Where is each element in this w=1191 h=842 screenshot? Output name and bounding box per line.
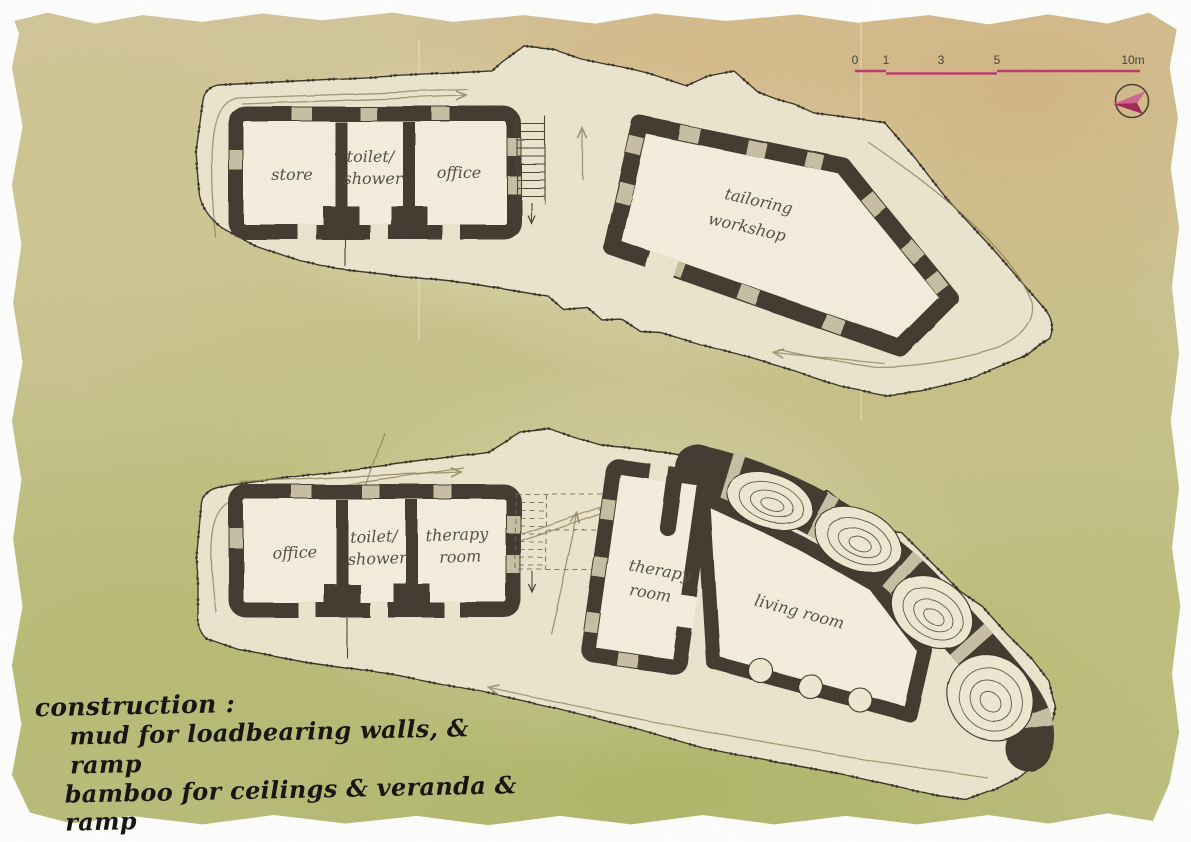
workshop-door: [648, 260, 676, 269]
lower-partition-foot: [394, 584, 430, 608]
note-line-mud: mud for loadbearing walls, & ramp: [69, 713, 536, 780]
upper-partition-wall: [335, 122, 347, 206]
scale-tick-0: 0: [852, 53, 859, 67]
scale-tick-5: 5: [994, 53, 1001, 67]
scale-tick-10m: 10m: [1121, 53, 1144, 67]
upper-partition-foot: [391, 206, 427, 230]
upper-partition-wall: [403, 122, 415, 206]
upper-plan: store toilet/ shower office tailoring wo…: [196, 46, 1052, 395]
therapy-living-door: [684, 596, 688, 628]
note-line-bamboo: bamboo for ceilings & veranda & ramp: [64, 770, 537, 837]
north-arrow-icon: [1113, 85, 1149, 118]
lower-partition-foot: [324, 584, 360, 608]
scale-tick-1: 1: [883, 53, 890, 67]
drawing-sheet: store toilet/ shower office tailoring wo…: [0, 0, 1191, 842]
lower-partition-wall: [336, 500, 348, 584]
arch-opening: [848, 688, 872, 712]
room-office2-label: office: [272, 542, 317, 563]
scale-tick-3: 3: [938, 53, 945, 67]
lower-partition-wall: [406, 500, 418, 584]
room-store-label: store: [271, 165, 312, 184]
upper-partition-foot: [323, 206, 359, 230]
arch-opening: [798, 674, 822, 698]
arch-opening: [748, 658, 772, 682]
therapy-room-b-door: [650, 471, 668, 474]
construction-note: construction : mud for loadbearing walls…: [35, 683, 538, 839]
therapy-room-b-notch-wall: [668, 477, 675, 528]
room-office-label: office: [437, 163, 482, 182]
scale-bar: 0 1 3 5 10m: [852, 53, 1145, 74]
